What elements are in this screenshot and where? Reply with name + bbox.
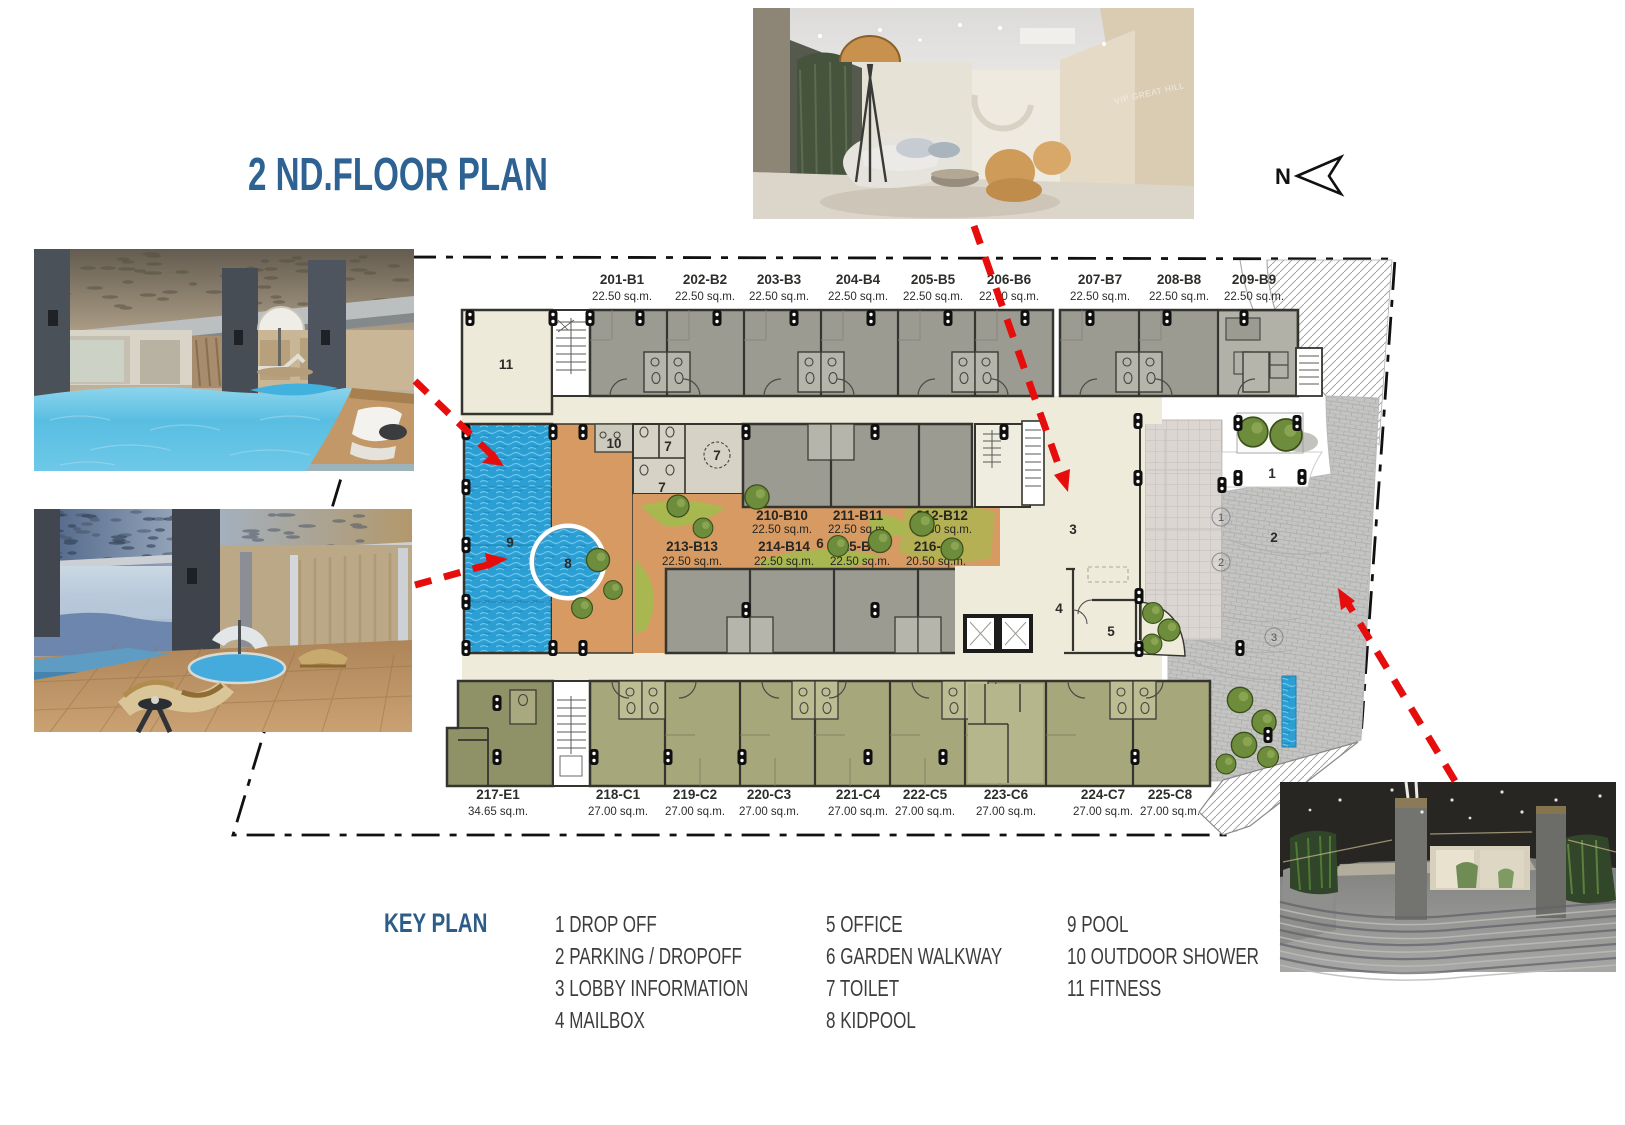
svg-text:210-B10: 210-B10 <box>756 508 808 523</box>
svg-text:217-E1: 217-E1 <box>476 787 520 802</box>
svg-text:2: 2 <box>1218 557 1224 569</box>
svg-text:10: 10 <box>606 436 621 451</box>
svg-text:214-B14: 214-B14 <box>758 539 810 554</box>
svg-text:203-B3: 203-B3 <box>757 272 802 287</box>
svg-text:N: N <box>1275 164 1291 189</box>
svg-text:6: 6 <box>816 536 824 551</box>
svg-text:2: 2 <box>1270 530 1278 545</box>
svg-text:204-B4: 204-B4 <box>836 272 881 287</box>
svg-text:221-C4: 221-C4 <box>836 787 881 802</box>
svg-text:222-C5: 222-C5 <box>903 787 948 802</box>
svg-text:4: 4 <box>1055 601 1063 616</box>
svg-text:224-C7: 224-C7 <box>1081 787 1125 802</box>
svg-text:206-B6: 206-B6 <box>987 272 1032 287</box>
svg-text:213-B13: 213-B13 <box>666 539 718 554</box>
svg-text:225-C8: 225-C8 <box>1148 787 1193 802</box>
svg-text:27.00 sq.m.: 27.00 sq.m. <box>1140 806 1200 818</box>
svg-text:1: 1 <box>1268 466 1276 481</box>
svg-text:22.50 sq.m.: 22.50 sq.m. <box>1149 291 1209 303</box>
svg-text:34.65 sq.m.: 34.65 sq.m. <box>468 806 528 818</box>
svg-text:27.00 sq.m.: 27.00 sq.m. <box>665 806 725 818</box>
svg-text:27.00 sq.m.: 27.00 sq.m. <box>895 806 955 818</box>
svg-text:209-B9: 209-B9 <box>1232 272 1276 287</box>
svg-text:223-C6: 223-C6 <box>984 787 1029 802</box>
svg-text:22.50 sq.m.: 22.50 sq.m. <box>1070 291 1130 303</box>
svg-text:22.50 sq.m.: 22.50 sq.m. <box>749 291 809 303</box>
svg-text:22.50 sq.m.: 22.50 sq.m. <box>592 291 652 303</box>
svg-text:208-B8: 208-B8 <box>1157 272 1202 287</box>
svg-text:27.00 sq.m.: 27.00 sq.m. <box>828 806 888 818</box>
svg-text:22.50 sq.m.: 22.50 sq.m. <box>754 556 814 568</box>
svg-text:202-B2: 202-B2 <box>683 272 727 287</box>
svg-text:201-B1: 201-B1 <box>600 272 645 287</box>
svg-text:8: 8 <box>564 556 572 571</box>
svg-text:207-B7: 207-B7 <box>1078 272 1122 287</box>
svg-text:5: 5 <box>1107 624 1115 639</box>
svg-text:3: 3 <box>1069 522 1077 537</box>
svg-text:9: 9 <box>506 535 514 550</box>
svg-text:11: 11 <box>499 357 514 372</box>
svg-text:22.50 sq.m.: 22.50 sq.m. <box>1224 291 1284 303</box>
svg-text:220-C3: 220-C3 <box>747 787 792 802</box>
svg-text:27.00 sq.m.: 27.00 sq.m. <box>739 806 799 818</box>
svg-text:27.00 sq.m.: 27.00 sq.m. <box>1073 806 1133 818</box>
svg-text:7: 7 <box>658 480 666 495</box>
svg-text:22.50 sq.m.: 22.50 sq.m. <box>675 291 735 303</box>
svg-text:3: 3 <box>1271 632 1277 644</box>
svg-text:22.50 sq.m.: 22.50 sq.m. <box>903 291 963 303</box>
svg-text:205-B5: 205-B5 <box>911 272 956 287</box>
svg-text:22.50 sq.m.: 22.50 sq.m. <box>828 291 888 303</box>
svg-text:27.00 sq.m.: 27.00 sq.m. <box>588 806 648 818</box>
svg-text:211-B11: 211-B11 <box>833 508 884 523</box>
svg-text:219-C2: 219-C2 <box>673 787 717 802</box>
svg-text:22.50 sq.m.: 22.50 sq.m. <box>830 556 890 568</box>
svg-text:22.50 sq.m.: 22.50 sq.m. <box>752 524 812 536</box>
svg-text:7: 7 <box>664 439 672 454</box>
svg-text:22.50 sq.m.: 22.50 sq.m. <box>662 556 722 568</box>
svg-text:1: 1 <box>1218 512 1224 524</box>
svg-text:27.00 sq.m.: 27.00 sq.m. <box>976 806 1036 818</box>
svg-text:7: 7 <box>713 448 721 463</box>
svg-text:218-C1: 218-C1 <box>596 787 641 802</box>
svg-text:22.50 sq.m.: 22.50 sq.m. <box>979 291 1039 303</box>
